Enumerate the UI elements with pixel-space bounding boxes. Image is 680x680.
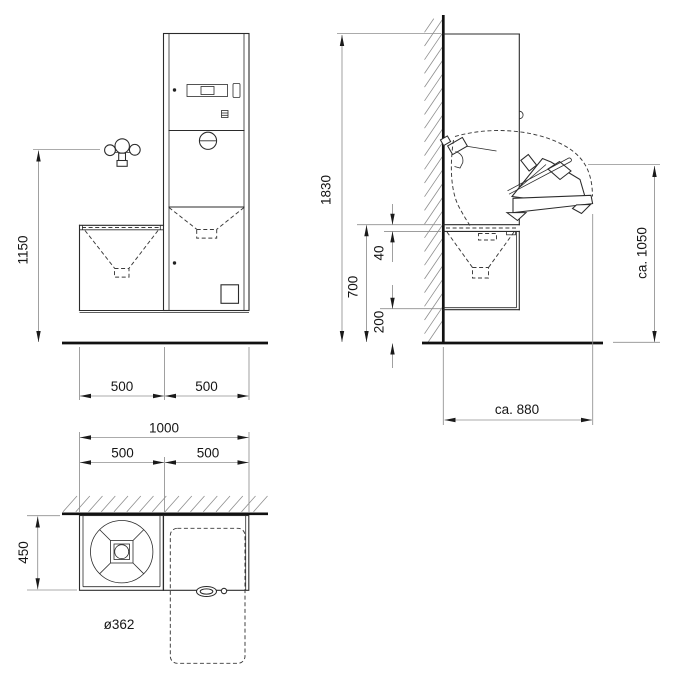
- dim-label-1150: 1150: [16, 235, 31, 264]
- plan-wall-hatching: [63, 496, 268, 512]
- waste-flap-dial: [199, 132, 216, 149]
- faucet-plan-icon: [197, 587, 227, 597]
- coin-slot-icon: [222, 111, 229, 118]
- dim-plan-widths: 500 500: [80, 446, 249, 513]
- side-view: 1830 700 40 200: [319, 15, 661, 425]
- dim-label-700: 700: [346, 276, 361, 299]
- drain-plan-icon: [115, 545, 129, 559]
- dim-side-rim-thickness: 40: [372, 204, 442, 262]
- service-hatch: [221, 285, 239, 304]
- drain-funnel-left: [85, 231, 158, 278]
- dim-label-front-500-right: 500: [195, 379, 218, 394]
- control-panel: [173, 84, 240, 118]
- front-view: 1150 500 500: [16, 34, 269, 401]
- dim-plan-depth: 450: [16, 516, 77, 590]
- dim-label-ca-880: ca. 880: [495, 402, 539, 417]
- technical-drawing-sheet: 1150 500 500: [0, 0, 680, 680]
- plan-view: 1000 500 500: [16, 421, 268, 664]
- dim-label-40: 40: [372, 245, 387, 260]
- dim-side-open-depth: ca. 880: [443, 214, 592, 425]
- dim-label-1000: 1000: [149, 421, 179, 436]
- dim-label-plan-500-left: 500: [111, 446, 134, 461]
- dim-side-total-height: 1830: [319, 34, 442, 343]
- drain-funnel-side: [447, 232, 514, 278]
- dim-label-450: 450: [16, 541, 31, 564]
- dim-front-widths: 500 500: [80, 347, 250, 400]
- folding-unit-plan: [163, 516, 249, 664]
- dim-label-ca-1050: ca. 1050: [635, 227, 650, 279]
- drawing-svg: 1150 500 500: [0, 0, 680, 680]
- cabinet-side: [443, 34, 523, 310]
- dim-label-1830: 1830: [319, 175, 334, 205]
- sink-bowl-plan: [91, 521, 153, 583]
- tray-bracket: [507, 213, 526, 221]
- dim-label-bowl-diameter: ø362: [104, 617, 135, 632]
- faucet-side-icon: [440, 136, 496, 168]
- lock-dot-icon: [173, 88, 176, 91]
- hinge-dot-icon: [173, 261, 176, 264]
- low-cabinet-front: [80, 225, 164, 310]
- dim-side-open-height: ca. 1050: [588, 165, 660, 343]
- dim-label-200: 200: [372, 311, 387, 334]
- wall-hatching: [425, 19, 443, 343]
- faucet-front-icon: [105, 139, 141, 167]
- tall-cabinet-front: [80, 34, 250, 313]
- drain-funnel-right: [169, 208, 244, 239]
- drain-lip: [573, 205, 591, 214]
- dim-label-front-500-left: 500: [111, 379, 134, 394]
- sink-unit-plan: [80, 516, 164, 591]
- door-knob-icon: [519, 111, 523, 119]
- dim-label-plan-500-right: 500: [197, 446, 220, 461]
- dim-front-faucet-height: 1150: [16, 150, 101, 343]
